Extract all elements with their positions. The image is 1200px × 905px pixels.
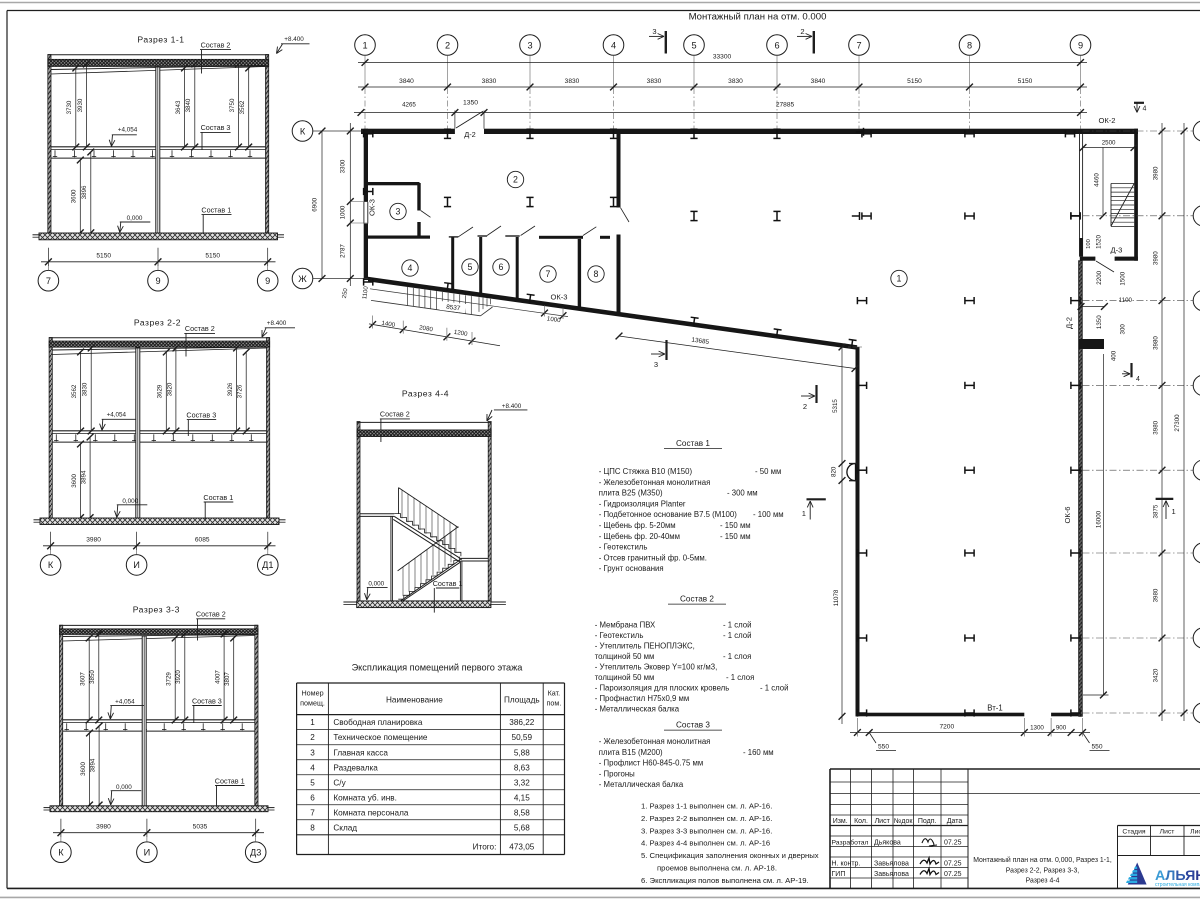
svg-text:ОК-3: ОК-3 (368, 199, 377, 216)
svg-text:3: 3 (396, 207, 401, 217)
svg-text:33300: 33300 (713, 54, 732, 61)
svg-text:Состав 2: Состав 2 (380, 410, 410, 419)
svg-text:16000: 16000 (1096, 510, 1103, 528)
svg-text:3980: 3980 (1152, 420, 1159, 434)
svg-text:5: 5 (310, 778, 315, 787)
svg-text:1520: 1520 (1095, 235, 1102, 249)
svg-text:3980: 3980 (1152, 251, 1159, 265)
svg-text:2: 2 (803, 402, 807, 411)
svg-text:473,05: 473,05 (509, 842, 534, 851)
svg-text:3830: 3830 (647, 78, 662, 85)
svg-text:Склад: Склад (333, 823, 357, 832)
svg-text:ОК-2: ОК-2 (1098, 116, 1115, 125)
svg-text:- 160 мм: - 160 мм (743, 748, 774, 757)
svg-text:Д-2: Д-2 (1064, 317, 1073, 329)
svg-text:3726: 3726 (237, 384, 244, 398)
svg-text:Стадия: Стадия (1122, 828, 1145, 835)
svg-text:- 1 слоя: - 1 слоя (723, 652, 751, 661)
svg-text:3: 3 (652, 27, 656, 36)
svg-text:3840: 3840 (399, 78, 414, 85)
svg-text:И: И (133, 560, 140, 570)
svg-text:7: 7 (546, 269, 551, 279)
svg-text:5150: 5150 (907, 78, 922, 85)
svg-text:3730: 3730 (66, 100, 73, 114)
svg-text:Состав 3: Состав 3 (676, 721, 710, 730)
svg-text:6: 6 (310, 793, 315, 802)
svg-text:толщиной 50 мм: толщиной 50 мм (595, 673, 655, 682)
svg-text:8: 8 (594, 269, 599, 279)
svg-text:3850: 3850 (89, 670, 96, 684)
svg-text:Свободная планировка: Свободная планировка (333, 718, 422, 727)
svg-text:6: 6 (774, 40, 779, 50)
svg-text:9: 9 (155, 276, 160, 286)
svg-text:№док: №док (894, 818, 913, 825)
svg-text:Площадь: Площадь (504, 696, 540, 705)
svg-text:- Железобетонная монолитная: - Железобетонная монолитная (599, 478, 711, 487)
svg-text:3643: 3643 (175, 100, 182, 114)
svg-text:Дьякова: Дьякова (874, 839, 901, 846)
svg-text:3894: 3894 (90, 758, 97, 772)
svg-text:3896: 3896 (81, 185, 88, 199)
svg-text:2: 2 (445, 40, 450, 50)
svg-text:К: К (48, 560, 54, 570)
svg-text:Ж: Ж (298, 274, 307, 284)
svg-text:1: 1 (310, 718, 315, 727)
svg-text:5150: 5150 (96, 253, 111, 260)
svg-text:1: 1 (1172, 507, 1176, 516)
svg-text:3729: 3729 (166, 672, 173, 686)
svg-text:+4,054: +4,054 (107, 412, 127, 419)
svg-text:- Щебень фр. 5-20мм: - Щебень фр. 5-20мм (599, 521, 676, 530)
svg-text:1500: 1500 (1119, 271, 1126, 285)
svg-text:Лис: Лис (1190, 828, 1200, 835)
svg-text:3930: 3930 (77, 98, 84, 112)
svg-text:толщиной 50 мм: толщиной 50 мм (595, 652, 655, 661)
svg-text:Состав 2: Состав 2 (185, 324, 215, 333)
svg-text:Состав 3: Состав 3 (186, 410, 216, 419)
svg-text:100: 100 (1086, 239, 1092, 249)
svg-text:ОК-3: ОК-3 (550, 293, 567, 302)
svg-text:Разрез 2-2, Разрез 3-3,: Разрез 2-2, Разрез 3-3, (1006, 868, 1079, 875)
svg-text:27300: 27300 (1174, 414, 1181, 432)
svg-text:0,000: 0,000 (122, 498, 138, 505)
svg-text:Разрез 2-2: Разрез 2-2 (134, 317, 181, 327)
svg-text:Экспликация помещений первого: Экспликация помещений первого этажа (352, 663, 524, 673)
svg-text:07.25: 07.25 (944, 860, 962, 867)
svg-text:6: 6 (499, 262, 504, 272)
svg-text:- 1 слой: - 1 слой (760, 684, 789, 693)
svg-text:550: 550 (1092, 744, 1103, 751)
svg-text:4: 4 (408, 263, 413, 273)
svg-text:4: 4 (310, 763, 315, 772)
svg-text:Кат.: Кат. (548, 689, 561, 698)
svg-text:3: 3 (527, 40, 532, 50)
svg-text:7: 7 (856, 40, 861, 50)
svg-text:5150: 5150 (1018, 78, 1033, 85)
svg-text:6085: 6085 (195, 537, 210, 544)
svg-text:- 150 мм: - 150 мм (720, 521, 751, 530)
svg-text:- Пароизоляция для плоских кро: - Пароизоляция для плоских кровель (595, 684, 730, 693)
svg-text:6900: 6900 (312, 197, 319, 211)
svg-text:- ЦПС Стяжка В10 (М150): - ЦПС Стяжка В10 (М150) (599, 467, 693, 476)
svg-text:проемов выполнена см. л. АР-18: проемов выполнена см. л. АР-18. (657, 864, 777, 873)
svg-text:- 150 мм: - 150 мм (720, 532, 751, 541)
svg-text:2787: 2787 (340, 244, 347, 258)
svg-text:Главная касса: Главная касса (333, 748, 388, 757)
svg-text:4460: 4460 (1094, 173, 1101, 187)
svg-text:3,32: 3,32 (514, 778, 530, 787)
svg-text:3562: 3562 (239, 100, 246, 114)
svg-text:Разрез 4-4: Разрез 4-4 (402, 388, 449, 398)
svg-text:Разрез 4-4: Разрез 4-4 (1026, 878, 1060, 885)
svg-text:9: 9 (1078, 40, 1083, 50)
svg-text:8: 8 (310, 823, 315, 832)
svg-text:3: 3 (654, 360, 658, 369)
svg-text:- Металлическая балка: - Металлическая балка (595, 705, 680, 714)
svg-text:Состав 1: Состав 1 (203, 493, 233, 502)
svg-text:Раздевалка: Раздевалка (333, 763, 378, 772)
svg-text:1000: 1000 (340, 205, 347, 219)
svg-text:Завьялова: Завьялова (874, 871, 909, 878)
svg-text:- Профлист Н60-845-0.75 мм: - Профлист Н60-845-0.75 мм (599, 759, 703, 768)
svg-text:Состав 3: Состав 3 (201, 123, 231, 132)
svg-text:900: 900 (1056, 725, 1067, 732)
svg-text:- 1 слой: - 1 слой (723, 621, 752, 630)
svg-text:3980: 3980 (1152, 336, 1159, 350)
svg-text:- Отсев гранитный фр. 0-5мм.: - Отсев гранитный фр. 0-5мм. (599, 553, 707, 562)
svg-text:Монтажный план на отм. 0.000: Монтажный план на отм. 0.000 (689, 12, 827, 23)
svg-text:ГИП: ГИП (832, 871, 846, 878)
svg-text:Н. контр.: Н. контр. (832, 860, 861, 867)
svg-text:1350: 1350 (463, 99, 478, 106)
svg-text:7: 7 (310, 808, 315, 817)
svg-text:1. Разрез 1-1 выполнен см. л.: 1. Разрез 1-1 выполнен см. л. АР-16. (641, 802, 772, 811)
svg-text:- Утеплитель ПЕНОПЛЭКС,: - Утеплитель ПЕНОПЛЭКС, (595, 642, 695, 651)
svg-text:Лист: Лист (875, 818, 891, 825)
svg-text:Техническое помещение: Техническое помещение (333, 733, 428, 742)
svg-text:3894: 3894 (81, 470, 88, 484)
svg-text:Д1: Д1 (262, 560, 273, 570)
svg-text:- 50 мм: - 50 мм (755, 467, 781, 476)
svg-text:К: К (58, 848, 64, 858)
svg-text:8,63: 8,63 (514, 763, 530, 772)
svg-text:Разрез 3-3: Разрез 3-3 (133, 605, 180, 615)
svg-text:1: 1 (362, 40, 367, 50)
svg-text:11078: 11078 (833, 589, 840, 606)
svg-text:3: 3 (310, 748, 315, 757)
svg-text:Разрез 1-1: Разрез 1-1 (137, 35, 184, 45)
svg-text:К: К (300, 126, 306, 136)
svg-text:Состав 1: Состав 1 (201, 205, 231, 214)
svg-text:3980: 3980 (96, 824, 111, 831)
svg-text:Изм.: Изм. (833, 818, 848, 825)
svg-text:2500: 2500 (1102, 140, 1116, 147)
svg-text:27885: 27885 (776, 102, 795, 109)
svg-text:4: 4 (1136, 376, 1140, 383)
svg-text:07.25: 07.25 (944, 839, 962, 846)
svg-text:Состав 1: Состав 1 (215, 776, 245, 785)
svg-text:3750: 3750 (229, 98, 236, 112)
svg-text:- Прогоны: - Прогоны (599, 769, 635, 778)
svg-text:Итого:: Итого: (473, 842, 497, 851)
svg-text:0,000: 0,000 (127, 215, 143, 222)
svg-text:8,58: 8,58 (514, 808, 530, 817)
svg-text:- Железобетонная монолитная: - Железобетонная монолитная (599, 737, 711, 746)
svg-text:- 1 слой: - 1 слой (723, 631, 752, 640)
svg-text:1350: 1350 (1096, 315, 1103, 329)
svg-text:3980: 3980 (86, 537, 101, 544)
svg-text:- 300 мм: - 300 мм (727, 489, 758, 498)
svg-text:1100: 1100 (1119, 297, 1133, 304)
svg-text:3. Разрез 3-3 выполнен см. л.: 3. Разрез 3-3 выполнен см. л. АР-16. (641, 826, 772, 835)
svg-text:5150: 5150 (205, 253, 220, 260)
svg-text:5315: 5315 (832, 399, 839, 413)
svg-text:И: И (144, 848, 151, 858)
svg-text:Состав 2: Состав 2 (201, 40, 231, 49)
svg-text:386,22: 386,22 (509, 718, 534, 727)
svg-text:Д-3: Д-3 (1110, 245, 1122, 254)
svg-text:3600: 3600 (71, 189, 78, 203)
svg-text:400: 400 (1111, 350, 1118, 361)
svg-text:3300: 3300 (340, 159, 347, 173)
svg-text:9: 9 (265, 276, 270, 286)
svg-text:+8.400: +8.400 (267, 320, 287, 327)
svg-text:- Щебень фр. 20-40мм: - Щебень фр. 20-40мм (599, 532, 680, 541)
svg-text:Разработал: Разработал (832, 838, 869, 846)
svg-text:4: 4 (611, 40, 616, 50)
svg-text:3562: 3562 (71, 384, 78, 398)
svg-text:+4,054: +4,054 (118, 127, 138, 134)
svg-text:+8.400: +8.400 (502, 403, 522, 410)
svg-text:Подп.: Подп. (918, 818, 937, 825)
svg-text:Комната персонала: Комната персонала (333, 808, 408, 817)
svg-text:3420: 3420 (1152, 668, 1159, 682)
svg-text:Дата: Дата (947, 818, 963, 825)
svg-text:помещ.: помещ. (300, 699, 325, 708)
svg-text:07.25: 07.25 (944, 871, 962, 878)
svg-text:С/у: С/у (333, 778, 346, 787)
svg-text:Состав 2: Состав 2 (680, 595, 714, 604)
svg-text:- Геотекстиль: - Геотекстиль (599, 543, 648, 552)
svg-text:3830: 3830 (728, 78, 743, 85)
svg-text:5035: 5035 (193, 824, 208, 831)
svg-text:- 1 слоя: - 1 слоя (726, 673, 754, 682)
svg-text:Монтажный план на отм. 0,000,: Монтажный план на отм. 0,000, Разрез 1-1… (973, 856, 1112, 864)
svg-text:Состав 1: Состав 1 (676, 439, 710, 448)
svg-text:Завьялова: Завьялова (874, 860, 909, 867)
svg-text:- Мембрана ПВХ: - Мембрана ПВХ (595, 621, 656, 630)
svg-text:Лист: Лист (1160, 828, 1175, 835)
svg-text:3840: 3840 (811, 78, 826, 85)
svg-text:6. Экспликация полов выполнена: 6. Экспликация полов выполнена см. л. АР… (641, 876, 809, 885)
svg-text:3600: 3600 (80, 762, 87, 776)
svg-text:3600: 3600 (71, 473, 78, 487)
svg-text:- Металлическая балка: - Металлическая балка (599, 780, 684, 789)
svg-text:5,68: 5,68 (514, 823, 530, 832)
svg-text:1: 1 (802, 509, 806, 518)
svg-text:2. Разрез 2-2 выполнен см. л.: 2. Разрез 2-2 выполнен см. л. АР-16. (641, 814, 772, 823)
svg-text:3830: 3830 (82, 382, 89, 396)
svg-text:3920: 3920 (175, 670, 182, 684)
svg-text:Состав 1: Состав 1 (433, 579, 463, 588)
svg-text:Кол.: Кол. (854, 818, 868, 825)
svg-text:300: 300 (1119, 324, 1126, 335)
svg-text:5. Спецификация заполнения око: 5. Спецификация заполнения оконных и две… (641, 851, 819, 860)
svg-text:Д3: Д3 (250, 848, 261, 858)
svg-text:3807: 3807 (224, 672, 231, 686)
svg-text:5: 5 (691, 40, 696, 50)
svg-text:3980: 3980 (1152, 588, 1159, 602)
svg-text:- Геотекстиль: - Геотекстиль (595, 631, 644, 640)
svg-text:7200: 7200 (939, 724, 954, 731)
svg-text:4,15: 4,15 (514, 793, 530, 802)
svg-text:2: 2 (310, 733, 315, 742)
svg-text:4. Разрез 4-4 выполнен см. л.: 4. Разрез 4-4 выполнен см. л. АР-16 (641, 839, 770, 848)
svg-text:50,59: 50,59 (512, 733, 533, 742)
svg-text:Состав 3: Состав 3 (192, 696, 222, 705)
svg-text:0,000: 0,000 (368, 580, 384, 587)
svg-text:1300: 1300 (1030, 725, 1044, 732)
svg-text:3926: 3926 (227, 382, 234, 396)
svg-text:2: 2 (800, 27, 804, 36)
svg-text:3820: 3820 (166, 382, 173, 396)
svg-text:3830: 3830 (565, 78, 580, 85)
svg-text:Состав 2: Состав 2 (196, 610, 226, 619)
svg-text:3875: 3875 (1152, 504, 1159, 518)
svg-text:5,88: 5,88 (514, 748, 530, 757)
svg-text:3607: 3607 (80, 672, 87, 686)
svg-text:Номер: Номер (301, 689, 323, 698)
svg-text:+4,054: +4,054 (115, 698, 135, 705)
svg-text:строительная компания: строительная компания (1155, 882, 1200, 888)
svg-text:- Утеплитель Эковер Y=100 кг/м: - Утеплитель Эковер Y=100 кг/м3, (595, 663, 718, 672)
svg-text:8: 8 (967, 40, 972, 50)
svg-text:- Профнастил Н75х0,9 мм: - Профнастил Н75х0,9 мм (595, 694, 690, 703)
svg-text:ОК-6: ОК-6 (1063, 506, 1072, 523)
svg-text:820: 820 (831, 466, 838, 477)
svg-text:плита В25 (М350): плита В25 (М350) (599, 489, 663, 498)
svg-text:4265: 4265 (402, 102, 416, 109)
svg-text:2: 2 (513, 175, 518, 185)
svg-text:Комната уб. инв.: Комната уб. инв. (333, 793, 396, 802)
svg-text:плита В15 (М200): плита В15 (М200) (599, 748, 663, 757)
svg-text:- Подбетонное основание В7.5 (: - Подбетонное основание В7.5 (М100) (599, 510, 738, 519)
svg-text:пом.: пом. (546, 699, 561, 708)
svg-text:Вт-1: Вт-1 (987, 703, 1002, 712)
svg-text:3980: 3980 (1152, 166, 1159, 180)
svg-text:7: 7 (46, 276, 51, 286)
svg-text:550: 550 (878, 744, 889, 751)
svg-text:- 100 мм: - 100 мм (753, 510, 784, 519)
svg-text:Наименование: Наименование (386, 696, 443, 705)
svg-text:3840: 3840 (185, 98, 192, 112)
svg-text:3629: 3629 (157, 384, 164, 398)
svg-text:1: 1 (897, 274, 902, 284)
svg-text:2200: 2200 (1096, 270, 1103, 284)
svg-text:5: 5 (468, 262, 473, 272)
svg-text:4: 4 (1143, 106, 1147, 113)
svg-text:- Гидроизоляция Planter: - Гидроизоляция Planter (599, 499, 686, 508)
svg-text:+8.400: +8.400 (284, 36, 304, 43)
svg-text:0,000: 0,000 (116, 784, 132, 791)
svg-text:Д-2: Д-2 (464, 130, 476, 139)
svg-text:- Грунт основания: - Грунт основания (599, 564, 664, 573)
svg-text:3830: 3830 (482, 78, 497, 85)
svg-text:4007: 4007 (215, 670, 222, 684)
